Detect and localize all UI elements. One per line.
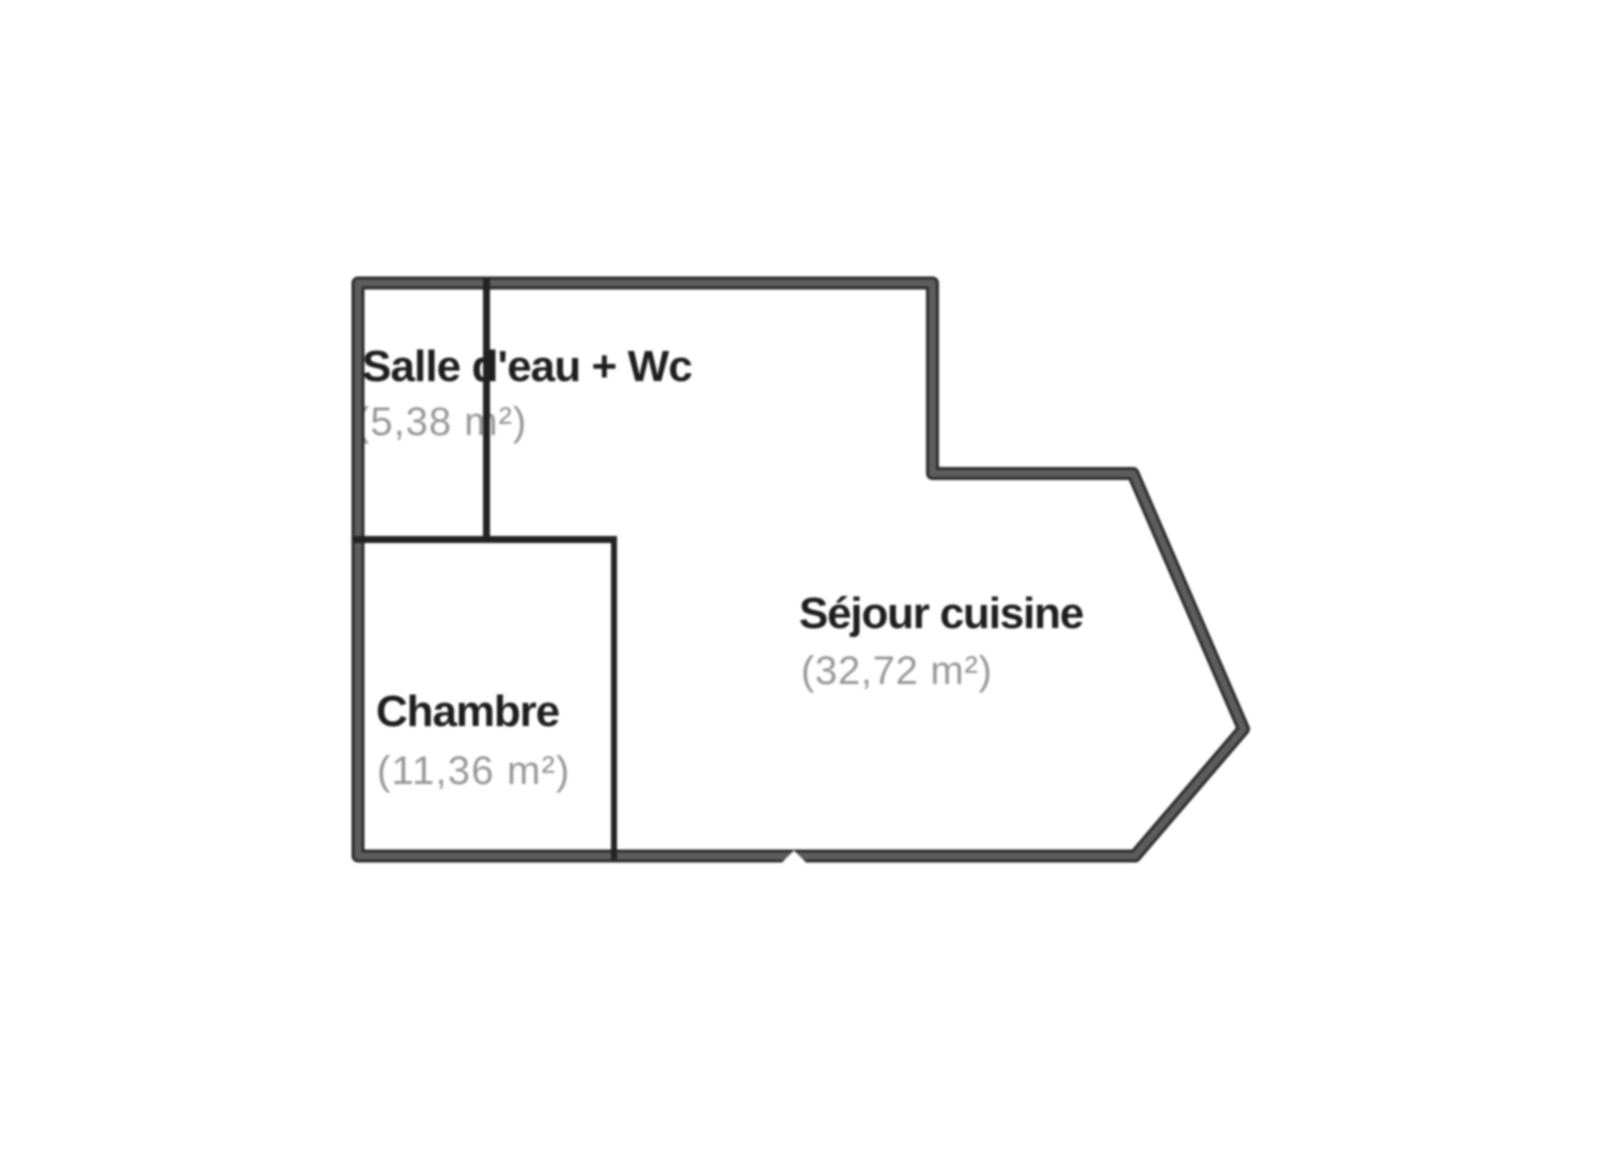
svg-text:(5,38 m²): (5,38 m²) — [356, 400, 527, 444]
svg-text:(32,72 m²): (32,72 m²) — [801, 649, 993, 693]
svg-text:Salle d'eau + Wc: Salle d'eau + Wc — [362, 342, 692, 391]
svg-text:(11,36 m²): (11,36 m²) — [377, 749, 571, 793]
svg-text:Chambre: Chambre — [376, 687, 559, 736]
svg-text:Séjour cuisine: Séjour cuisine — [799, 589, 1083, 638]
